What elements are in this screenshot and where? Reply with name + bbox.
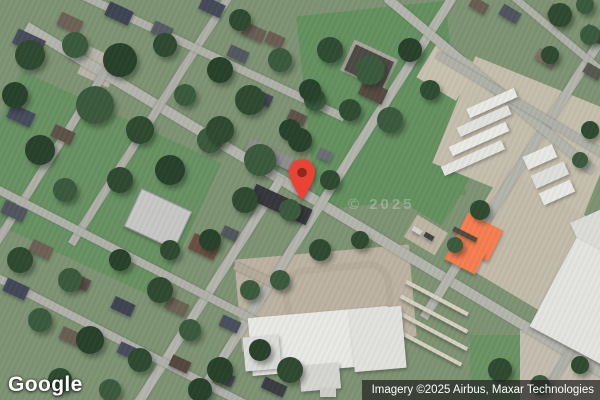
tree	[576, 0, 594, 14]
tree	[299, 79, 321, 101]
pin-body	[289, 159, 315, 200]
tree	[174, 84, 196, 106]
tree	[317, 37, 343, 63]
tree	[270, 270, 290, 290]
tree	[199, 229, 221, 251]
house-roof	[56, 12, 84, 35]
pin-hole	[297, 168, 307, 178]
tree	[571, 356, 589, 374]
tree	[232, 187, 258, 213]
school-building-wing	[349, 306, 406, 372]
tree	[76, 326, 104, 354]
imagery-attribution: Imagery ©2025 Airbus, Maxar Technologies	[362, 380, 600, 400]
tree	[76, 86, 114, 124]
tree	[279, 199, 301, 221]
tree	[7, 247, 33, 273]
satellite-map[interactable]: © 2025 Google Imagery ©2025 Airbus, Maxa…	[0, 0, 600, 400]
tree	[207, 57, 233, 83]
tree	[240, 280, 260, 300]
tree	[249, 339, 271, 361]
map-pin-icon[interactable]	[288, 158, 316, 202]
tree	[179, 319, 201, 341]
tree	[339, 99, 361, 121]
tree	[470, 200, 490, 220]
tree	[109, 249, 131, 271]
house-roof	[468, 0, 489, 15]
tree	[147, 277, 173, 303]
tree	[99, 379, 121, 400]
tree	[126, 116, 154, 144]
tree	[244, 144, 276, 176]
house-roof	[498, 4, 521, 25]
tree	[58, 268, 82, 292]
tree	[488, 358, 512, 382]
tree	[103, 43, 137, 77]
tree	[420, 80, 440, 100]
tree	[572, 152, 588, 168]
tree	[277, 357, 303, 383]
tree	[2, 82, 28, 108]
tree	[581, 121, 599, 139]
house-roof	[264, 31, 285, 49]
tree	[351, 231, 369, 249]
tree	[107, 167, 133, 193]
tree	[235, 85, 265, 115]
tree	[160, 240, 180, 260]
tree	[309, 239, 331, 261]
house-roof	[110, 296, 135, 317]
tree	[548, 3, 572, 27]
small-structure	[320, 388, 336, 397]
tree	[188, 378, 212, 400]
tree	[62, 32, 88, 58]
tree	[447, 237, 463, 253]
tree	[155, 155, 185, 185]
tree	[268, 48, 292, 72]
tree	[206, 116, 234, 144]
tree	[207, 357, 233, 383]
tree	[15, 40, 45, 70]
tree	[541, 46, 559, 64]
tree	[320, 170, 340, 190]
tree	[398, 38, 422, 62]
tree	[229, 9, 251, 31]
imagery-watermark: © 2025	[348, 196, 415, 213]
tree	[580, 25, 600, 45]
tree	[355, 55, 385, 85]
tree	[53, 178, 77, 202]
tree	[288, 128, 312, 152]
tree	[28, 308, 52, 332]
tree	[153, 33, 177, 57]
tree	[25, 135, 55, 165]
tree	[128, 348, 152, 372]
tree	[377, 107, 403, 133]
google-logo[interactable]: Google	[8, 373, 83, 397]
